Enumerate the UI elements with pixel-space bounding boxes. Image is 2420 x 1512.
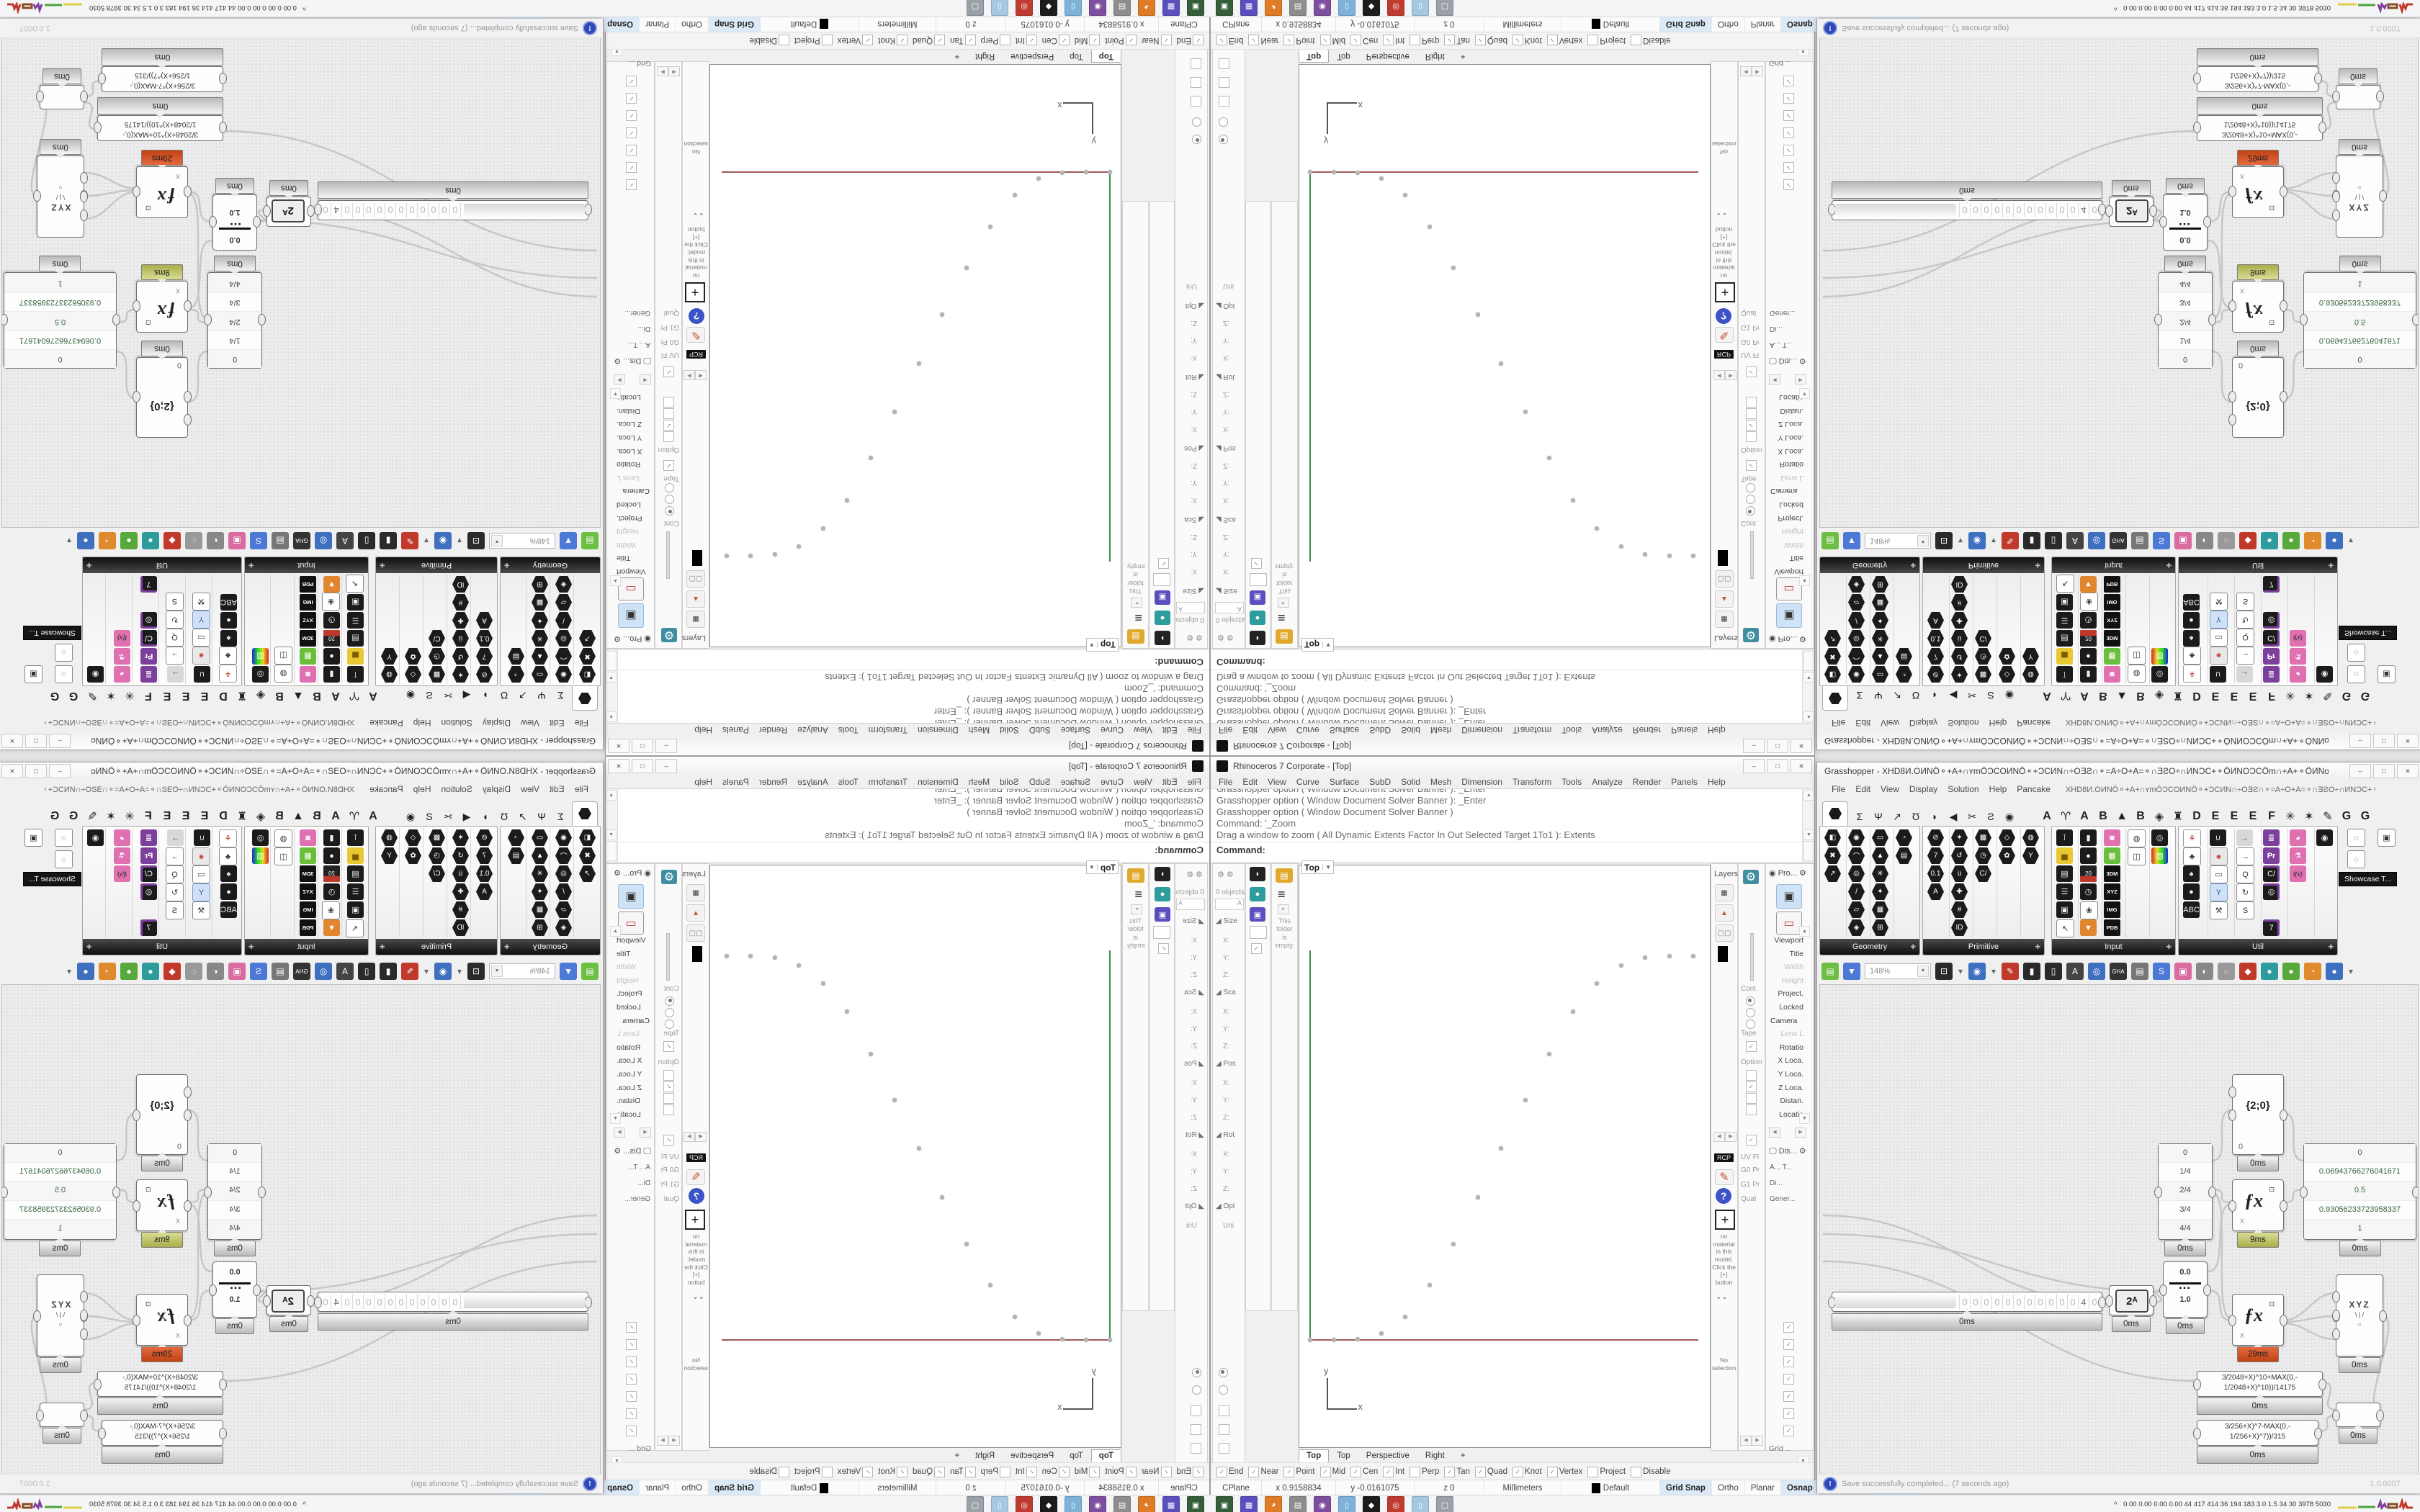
property-item-title[interactable]: Title bbox=[617, 554, 630, 562]
nav-right-icon[interactable]: ▶ bbox=[1752, 66, 1763, 76]
menu-item-dimension[interactable]: Dimension bbox=[1461, 725, 1502, 735]
menu-item-transform[interactable]: Transform bbox=[869, 777, 907, 787]
slider-digit-cell[interactable]: 0 bbox=[321, 1295, 331, 1309]
boxedit-checkbox[interactable] bbox=[1219, 1424, 1229, 1435]
input-port[interactable] bbox=[80, 210, 88, 221]
menu-item-tools[interactable]: Tools bbox=[838, 777, 859, 787]
component-icon[interactable]: C/ bbox=[2263, 865, 2280, 882]
scroll-down-icon[interactable]: ▼ bbox=[610, 1113, 621, 1124]
gha-badge-icon[interactable]: GHA bbox=[293, 963, 310, 980]
osnap-label[interactable]: Point bbox=[1296, 1467, 1314, 1476]
gh-tab-plugin-7[interactable]: ♜ bbox=[236, 686, 248, 705]
component-icon[interactable]: ▼ bbox=[323, 919, 340, 936]
gh-tab-plugin-16[interactable]: G bbox=[2340, 686, 2353, 705]
component-icon[interactable]: ▤ bbox=[1896, 847, 1912, 864]
nav-left-icon[interactable]: ◀ bbox=[640, 374, 651, 384]
component-icon[interactable]: → bbox=[166, 647, 184, 665]
osnap-label[interactable]: Tan bbox=[950, 36, 964, 45]
component-icon[interactable]: ✳ bbox=[532, 865, 548, 882]
component-icon[interactable]: ✦ bbox=[532, 612, 548, 629]
gh-component-panel-values[interactable]: 00.069437662760416710.50.930562337239583… bbox=[4, 1143, 117, 1240]
gh-titlebar[interactable]: Grasshopper - XHD8И.OИNÖ⚬+A+∩ʏmÖƆCOИNÖ⚬+… bbox=[1817, 762, 2420, 780]
component-icon[interactable]: ü bbox=[1951, 630, 1968, 647]
menu-item-panels[interactable]: Panels bbox=[1671, 777, 1698, 787]
status-cell[interactable]: Millimeters bbox=[859, 16, 936, 32]
status-cell[interactable]: z 0 bbox=[936, 1480, 1005, 1496]
component-icon[interactable]: ▭ bbox=[2210, 629, 2228, 647]
gh-tab-plugin-4[interactable]: ▲ bbox=[292, 807, 305, 826]
osnap-label[interactable]: Point bbox=[1105, 36, 1124, 45]
viewport-top[interactable]: Top▼ y x bbox=[1299, 865, 1711, 1448]
component-icon[interactable]: 3DM bbox=[300, 630, 316, 647]
component-icon[interactable]: 20 bbox=[2080, 865, 2097, 882]
component-icon[interactable]: → bbox=[166, 847, 184, 865]
doc-icon[interactable]: ▢▢ bbox=[1715, 924, 1734, 942]
component-icon[interactable]: ✚ bbox=[1951, 612, 1968, 629]
component-icon[interactable]: ▭ bbox=[2210, 865, 2228, 883]
group-label-util[interactable]: Util✚ bbox=[83, 557, 241, 573]
component-icon[interactable]: ↻ bbox=[2236, 883, 2254, 901]
osnap-label[interactable]: Int bbox=[1016, 36, 1025, 45]
finder-icon[interactable]: S bbox=[250, 532, 267, 549]
boxedit-checkbox[interactable] bbox=[1191, 1424, 1201, 1435]
gh-tab-icon-7[interactable]: Ƨ bbox=[423, 807, 436, 826]
property-item-zloca[interactable]: Z Loca. bbox=[1778, 420, 1803, 428]
component-icon[interactable]: ▱ bbox=[555, 901, 572, 918]
osnap-label[interactable]: Quad bbox=[1487, 36, 1507, 45]
slider-digit-cell[interactable]: 0 bbox=[2045, 203, 2056, 217]
property-item-yloca[interactable]: Y Loca. bbox=[617, 433, 642, 442]
slider-digit-cell[interactable]: 0 bbox=[418, 1295, 429, 1309]
app-recorder[interactable]: ▣ bbox=[1216, 1496, 1233, 1512]
menu-item-file[interactable]: File bbox=[575, 718, 588, 728]
gh-tab-plugin-17[interactable]: G bbox=[48, 807, 61, 826]
hat-icon[interactable]: ◗ bbox=[1155, 867, 1170, 881]
input-port[interactable] bbox=[2332, 1310, 2340, 1321]
viewport-tab-+[interactable]: + bbox=[947, 1449, 968, 1462]
command-prompt[interactable]: Command: bbox=[1211, 842, 1803, 863]
constraint-checkbox[interactable] bbox=[1746, 397, 1757, 408]
gh-component-panel-values[interactable]: 00.069437662760416710.50.930562337239583… bbox=[4, 272, 117, 369]
display-checkbox[interactable]: ✓ bbox=[626, 1391, 637, 1402]
viewport-tab-+[interactable]: + bbox=[1453, 50, 1474, 63]
constraint-radio[interactable] bbox=[1746, 1020, 1755, 1029]
displaymode-icon[interactable]: ▲ bbox=[1715, 904, 1734, 922]
property-item-distan[interactable]: Distan. bbox=[617, 1097, 640, 1105]
property-item-yloca[interactable]: Y Loca. bbox=[617, 1070, 642, 1079]
component-icon[interactable]: ü bbox=[1951, 865, 1968, 882]
menu-item-file[interactable]: File bbox=[1188, 725, 1201, 735]
scroll-up-icon[interactable]: ▲ bbox=[1799, 926, 1810, 937]
scroll-up-icon[interactable]: ▲ bbox=[1803, 790, 1814, 801]
component-icon[interactable]: ◙ bbox=[300, 829, 316, 846]
caret-icon[interactable]: ▾ bbox=[1990, 532, 1997, 549]
component-icon[interactable]: 7 bbox=[140, 576, 157, 593]
component-icon[interactable]: ✶ bbox=[1951, 829, 1968, 846]
osnap-checkbox[interactable]: ✓ bbox=[1383, 35, 1394, 46]
gh-tab-icon-3[interactable]: Ʊ bbox=[1909, 686, 1922, 705]
component-icon[interactable]: ● bbox=[2080, 847, 2097, 864]
component-icon[interactable]: ▥ bbox=[252, 847, 269, 864]
component-icon[interactable]: ● bbox=[220, 612, 237, 629]
link-rings-icon[interactable]: ◎ bbox=[2088, 532, 2105, 549]
ball-pie-icon[interactable]: ◔ bbox=[99, 963, 116, 980]
input-port[interactable] bbox=[2193, 1379, 2201, 1390]
component-icon[interactable]: ◎ bbox=[555, 865, 572, 882]
minimize-button[interactable]: – bbox=[49, 764, 71, 778]
menu-item-analyze[interactable]: Analyze bbox=[797, 725, 828, 735]
menu-item-surface[interactable]: Surface bbox=[1330, 725, 1359, 735]
property-item-width[interactable]: Width bbox=[617, 963, 636, 971]
scroll-box[interactable] bbox=[1803, 651, 1814, 671]
masks-icon[interactable]: ◐ bbox=[207, 532, 224, 549]
group-expand-icon[interactable]: ✚ bbox=[248, 562, 254, 570]
component-icon[interactable]: ◍ bbox=[2128, 829, 2146, 847]
menu-item-mesh[interactable]: Mesh bbox=[1430, 777, 1451, 787]
osnap-checkbox[interactable]: ✓ bbox=[1248, 35, 1259, 46]
component-icon[interactable]: → bbox=[167, 666, 184, 683]
menu-item-surface[interactable]: Surface bbox=[1330, 777, 1359, 787]
output-port[interactable] bbox=[133, 186, 140, 197]
component-icon[interactable]: ✳ bbox=[1872, 865, 1888, 882]
hat-icon[interactable]: ◗ bbox=[1250, 631, 1265, 645]
osnap-label[interactable]: Perp bbox=[981, 1467, 998, 1476]
gh-component-panel-fractions[interactable]: 01/42/43/44/4 bbox=[207, 1143, 262, 1240]
gh-tab-plugin-14[interactable]: ✶ bbox=[2303, 686, 2316, 705]
component-icon[interactable]: 7 bbox=[1927, 648, 1944, 665]
gh-tab-plugin-4[interactable]: ▲ bbox=[2115, 807, 2128, 826]
component-icon[interactable]: ▲ bbox=[1872, 648, 1888, 665]
display-row[interactable]: A... T... bbox=[628, 1164, 650, 1171]
gem-icon[interactable]: ◆ bbox=[2239, 963, 2257, 980]
property-item-locked[interactable]: Locked bbox=[1779, 500, 1803, 509]
component-icon[interactable]: ◷ bbox=[429, 847, 445, 864]
constraint-checkbox[interactable] bbox=[663, 397, 674, 408]
osnap-checkbox[interactable]: ✓ bbox=[1350, 1467, 1361, 1477]
maximize-button[interactable]: □ bbox=[2373, 734, 2395, 748]
component-icon[interactable]: IMG bbox=[2104, 901, 2120, 918]
panel-checkbox[interactable]: ✓ bbox=[1251, 558, 1262, 569]
display-checkbox[interactable]: ✓ bbox=[626, 76, 637, 86]
expand-icon[interactable]: ▸ bbox=[1131, 598, 1142, 608]
gh-titlebar[interactable]: Grasshopper - XHD8И.OИNÖ⚬+A+∩ʏmÖƆCOИNÖ⚬+… bbox=[0, 762, 603, 780]
status-cell[interactable]: Millimeters bbox=[1484, 1480, 1561, 1496]
speaker-icon[interactable]: ▯ bbox=[2045, 963, 2062, 980]
slider-digit-cell[interactable]: 0 bbox=[2035, 203, 2045, 217]
gh-tab-plugin-16[interactable]: G bbox=[67, 807, 80, 826]
rhino-command-history[interactable]: Grasshopper option ( Window Document Sol… bbox=[1211, 788, 1814, 863]
app-rhino[interactable]: ◆ bbox=[1040, 0, 1057, 16]
command-prompt[interactable]: Command: bbox=[617, 649, 1209, 670]
gh-tab-plugin-8[interactable]: D bbox=[217, 807, 230, 826]
gh-component-relay[interactable] bbox=[2336, 1403, 2380, 1427]
constraint-checkbox[interactable] bbox=[1746, 431, 1757, 442]
component-icon[interactable]: ↻ bbox=[2236, 611, 2254, 629]
status-cell[interactable]: Default bbox=[760, 16, 859, 32]
constraint-checkbox[interactable] bbox=[1746, 1093, 1757, 1104]
slider-digit-cell[interactable]: 0 bbox=[2089, 203, 2099, 217]
osnap-checkbox[interactable] bbox=[1631, 1467, 1641, 1477]
gh-component-relay[interactable] bbox=[2336, 85, 2380, 109]
caret-icon[interactable]: ▾ bbox=[66, 532, 73, 549]
help-icon[interactable]: ? bbox=[1716, 1188, 1731, 1204]
slider-digit-cell[interactable]: 0 bbox=[2056, 1295, 2067, 1309]
component-icon[interactable]: ▦ bbox=[2104, 847, 2120, 864]
status-cell[interactable]: z 0 bbox=[1415, 1480, 1484, 1496]
component-icon[interactable]: ◉ bbox=[192, 647, 210, 665]
gha-badge-icon[interactable]: GHA bbox=[293, 532, 310, 549]
maximize-button[interactable]: □ bbox=[1767, 759, 1788, 773]
output-port[interactable] bbox=[36, 91, 44, 102]
component-icon[interactable]: 0.1 bbox=[476, 630, 493, 647]
component-icon[interactable]: ♠ bbox=[220, 630, 237, 647]
constraint-checkbox[interactable]: ✓ bbox=[1746, 460, 1757, 471]
scroll-box[interactable] bbox=[606, 651, 617, 671]
constraint-checkbox[interactable] bbox=[1746, 1104, 1757, 1115]
gh-component-expression-2[interactable]: ƒx⊡X bbox=[136, 1294, 188, 1346]
slider-digit-cell[interactable]: 0 bbox=[396, 203, 407, 217]
slider-digit-cell[interactable]: 0 bbox=[1991, 1295, 2002, 1309]
app-notepad[interactable]: ▯ bbox=[1065, 1496, 1082, 1512]
scroll-up-icon[interactable]: ▲ bbox=[1799, 575, 1810, 586]
layers-materials-panel[interactable]: Layers▦▲▢▢◀▶RCP✎?+no material in this mo… bbox=[682, 61, 709, 649]
boxedit-checkbox[interactable] bbox=[1219, 96, 1229, 107]
scroll-down-icon[interactable]: ▼ bbox=[1803, 829, 1814, 840]
app-storage[interactable]: ▦ bbox=[1162, 0, 1180, 16]
app-firefox[interactable]: ◕ bbox=[1138, 0, 1155, 16]
gh-tab-icon-6[interactable]: ✂ bbox=[442, 686, 454, 705]
osnap-checkbox[interactable]: ✓ bbox=[1475, 1467, 1486, 1477]
status-cell[interactable]: Millimeters bbox=[1484, 16, 1561, 32]
component-icon[interactable]: ◧ bbox=[579, 829, 596, 846]
component-icon[interactable]: ◎ bbox=[1848, 865, 1865, 882]
output-port[interactable] bbox=[98, 1428, 106, 1439]
component-icon[interactable]: ≣ bbox=[140, 829, 157, 846]
gh-tab-icon-4[interactable]: ◗ bbox=[479, 807, 492, 826]
component-icon[interactable]: ≣ bbox=[2263, 829, 2280, 846]
tray-chevron[interactable]: ^ bbox=[2114, 4, 2118, 12]
gh-tab-icon-7[interactable]: Ƨ bbox=[1984, 807, 1997, 826]
scroll-down-icon[interactable]: ▼ bbox=[610, 388, 621, 399]
component-icon[interactable]: ◙ bbox=[2104, 666, 2120, 683]
menu-item-tools[interactable]: Tools bbox=[1561, 725, 1582, 735]
component-icon[interactable]: ▮ bbox=[2080, 666, 2097, 683]
status-toggle-planar[interactable]: Planar bbox=[639, 16, 675, 32]
menu-item-panels[interactable]: Panels bbox=[1671, 725, 1698, 735]
component-icon[interactable]: ◷ bbox=[323, 612, 340, 629]
component-icon[interactable]: ◉ bbox=[87, 829, 104, 846]
panel-gear-icon[interactable]: ⚙ bbox=[661, 870, 677, 884]
osnap-checkbox[interactable]: ✓ bbox=[1512, 35, 1523, 46]
osnap-label[interactable]: Vertex bbox=[838, 36, 861, 45]
component-icon[interactable]: ❀ bbox=[2080, 593, 2098, 611]
osnap-checkbox[interactable] bbox=[779, 35, 789, 46]
osnap-checkbox[interactable]: ✓ bbox=[934, 35, 945, 46]
property-item-rotatio[interactable]: Rotatio bbox=[617, 460, 640, 469]
component-icon[interactable]: ▱ bbox=[1848, 901, 1865, 918]
bag-icon[interactable]: ▣ bbox=[228, 532, 246, 549]
open-icon[interactable]: ▤ bbox=[1821, 963, 1839, 980]
gh-tab-plugin-5[interactable]: B bbox=[2134, 686, 2147, 705]
constraint-checkbox[interactable]: ✓ bbox=[1746, 1081, 1757, 1092]
display-checkbox[interactable]: ✓ bbox=[626, 145, 637, 156]
panel-gear-icon[interactable]: ⚙ bbox=[1743, 870, 1759, 884]
component-icon[interactable]: ✿ bbox=[1999, 648, 2015, 665]
output-port[interactable] bbox=[2280, 186, 2287, 197]
component-icon[interactable]: Y bbox=[2022, 847, 2039, 864]
displaymode-icon[interactable]: ▲ bbox=[686, 904, 705, 922]
menu-item-pancake[interactable]: Pancake bbox=[2017, 784, 2051, 794]
displaymode-icon[interactable]: ▲ bbox=[1715, 590, 1734, 608]
slider-digit-cell[interactable]: 0 bbox=[1981, 203, 1991, 217]
osnap-checkbox[interactable]: ✓ bbox=[1126, 1467, 1137, 1477]
group-label-util[interactable]: Util✚ bbox=[83, 939, 241, 955]
osnap-checkbox[interactable]: ✓ bbox=[1444, 1467, 1455, 1477]
input-port[interactable] bbox=[2193, 122, 2201, 133]
menu-item-display[interactable]: Display bbox=[1909, 718, 1937, 728]
component-icon[interactable]: ⊘ bbox=[1927, 829, 1944, 846]
ball-green-icon[interactable]: ● bbox=[2282, 532, 2300, 549]
camera-properties-icon[interactable]: ▣ bbox=[1776, 603, 1802, 628]
osnap-checkbox[interactable]: ✓ bbox=[862, 1467, 873, 1477]
component-icon[interactable]: ▱ bbox=[1848, 594, 1865, 611]
osnap-checkbox[interactable] bbox=[1000, 1467, 1010, 1477]
input-port[interactable] bbox=[258, 314, 266, 325]
component-icon[interactable]: 20 bbox=[2080, 630, 2097, 647]
component-icon[interactable]: ▥ bbox=[252, 648, 269, 665]
showcase-icon-0[interactable]: ◌ bbox=[2347, 665, 2365, 683]
gh-tab-plugin-3[interactable]: B bbox=[310, 807, 323, 826]
gh-tab-plugin-3[interactable]: B bbox=[2097, 807, 2110, 826]
menu-item-analyze[interactable]: Analyze bbox=[1592, 777, 1623, 787]
doc-icon[interactable]: ▢▢ bbox=[1715, 570, 1734, 588]
status-toggle-ortho[interactable]: Ortho bbox=[1712, 16, 1745, 32]
component-icon[interactable]: ▼ bbox=[2080, 919, 2097, 936]
gear-icon[interactable]: ⚙ ⚙ bbox=[1186, 633, 1203, 642]
link-rings-icon[interactable]: ◎ bbox=[2088, 963, 2105, 980]
component-icon[interactable]: → bbox=[167, 829, 184, 846]
input-port[interactable] bbox=[2228, 1200, 2236, 1212]
input-port[interactable] bbox=[184, 414, 192, 426]
minimize-button[interactable]: – bbox=[1743, 759, 1765, 773]
add-material-button[interactable]: + bbox=[1715, 1210, 1735, 1230]
slider-digit-cell[interactable]: 0 bbox=[2013, 1295, 2024, 1309]
slider-digit-cell[interactable]: 0 bbox=[429, 1295, 439, 1309]
osnap-checkbox[interactable]: ✓ bbox=[1475, 35, 1486, 46]
gh-tab-plugin-13[interactable]: ✳ bbox=[2284, 686, 2297, 705]
gem-icon[interactable]: ◆ bbox=[163, 963, 181, 980]
gh-tab-plugin-5[interactable]: B bbox=[273, 686, 286, 705]
menu-item-help[interactable]: Help bbox=[413, 718, 431, 728]
nav-right-icon[interactable]: ▶ bbox=[1752, 1436, 1763, 1446]
component-icon[interactable]: Q bbox=[166, 629, 184, 647]
panel-gear-icon[interactable]: ⚙ bbox=[661, 628, 677, 642]
app-window[interactable]: ▢ bbox=[967, 0, 984, 16]
component-icon[interactable]: ⊞ bbox=[1872, 919, 1888, 936]
menu-item-dimension[interactable]: Dimension bbox=[918, 777, 959, 787]
folder-icon[interactable]: ▤ bbox=[1276, 868, 1293, 883]
component-icon[interactable]: ◍ bbox=[2128, 665, 2146, 683]
gh-component-panel-expr-1[interactable]: 3/2048+X)^10+MAX(0,-1/2048+X)^10))/14175 bbox=[97, 115, 223, 141]
caret-icon[interactable]: ▾ bbox=[2347, 532, 2354, 549]
component-icon[interactable]: ◇ bbox=[405, 666, 421, 683]
menu-item-curve[interactable]: Curve bbox=[1296, 725, 1319, 735]
maximize-button[interactable]: □ bbox=[1767, 739, 1788, 753]
osnap-checkbox[interactable]: ✓ bbox=[965, 35, 976, 46]
component-icon[interactable]: ▅ bbox=[2056, 847, 2073, 864]
nav-right-icon[interactable]: ▶ bbox=[1725, 370, 1736, 380]
group-expand-icon[interactable]: ✚ bbox=[86, 562, 92, 570]
scroll-down-icon[interactable]: ▼ bbox=[606, 829, 617, 840]
osnap-checkbox[interactable]: ✓ bbox=[1283, 35, 1294, 46]
constraint-panel[interactable]: ⚙ContTapeOptionUV FlG0 PrG1 PrQual✓✓✓◀▶ bbox=[655, 61, 682, 649]
font-tool-icon[interactable]: A bbox=[2066, 963, 2084, 980]
gh-component-construct-point[interactable]: XYZ\ | /○ bbox=[37, 156, 84, 238]
nav-right-icon[interactable]: ▶ bbox=[1795, 1128, 1806, 1138]
component-icon[interactable]: ✖ bbox=[1824, 847, 1841, 864]
viewport-tab-top[interactable]: Top bbox=[1091, 1449, 1121, 1462]
help-icon[interactable]: ? bbox=[689, 1188, 704, 1204]
ball-pie-icon[interactable]: ◔ bbox=[2304, 963, 2321, 980]
gh-tab-plugin-11[interactable]: E bbox=[161, 807, 174, 826]
zoom-extents-icon[interactable]: ⊡ bbox=[467, 532, 485, 549]
component-icon[interactable]: ◫ bbox=[274, 647, 292, 665]
component-icon[interactable]: IMG bbox=[2104, 594, 2120, 611]
doc-flag-icon[interactable]: ▤ bbox=[2131, 532, 2148, 549]
input-port[interactable] bbox=[584, 204, 592, 215]
group-label-input[interactable]: Input✚ bbox=[2052, 939, 2175, 955]
gh-tab-plugin-15[interactable]: ✎ bbox=[86, 807, 99, 826]
input-port[interactable] bbox=[2332, 1328, 2340, 1340]
osnap-checkbox[interactable]: ✓ bbox=[1383, 1467, 1394, 1477]
finder-icon[interactable]: S bbox=[2153, 963, 2170, 980]
rhino-command-history[interactable]: Grasshopper option ( Window Document Sol… bbox=[1211, 649, 1814, 724]
viewport-tab-top[interactable]: Top bbox=[1299, 1449, 1329, 1462]
slider-digit-cell[interactable]: 0 bbox=[429, 203, 439, 217]
properties-tab[interactable]: ◉ Pro... ⚙ bbox=[614, 868, 651, 878]
slider-track[interactable] bbox=[1750, 933, 1754, 981]
boxedit-checkbox[interactable] bbox=[1219, 1405, 1229, 1416]
component-icon[interactable]: ⚗ bbox=[114, 847, 130, 864]
menu-item-help[interactable]: Help bbox=[1708, 725, 1726, 735]
component-icon[interactable]: ▤ bbox=[2056, 630, 2073, 647]
constraint-radio[interactable] bbox=[665, 996, 674, 1006]
component-icon[interactable]: ◈ bbox=[555, 576, 572, 593]
slider-digit-cell[interactable]: 0 bbox=[1959, 1295, 1970, 1309]
doc-icon[interactable]: ▢▢ bbox=[686, 924, 705, 942]
component-icon[interactable]: 3DM bbox=[2104, 630, 2120, 647]
nav-left-icon[interactable]: ◀ bbox=[668, 1436, 680, 1446]
output-port[interactable] bbox=[94, 1379, 102, 1390]
status-cell[interactable]: y -0.0161075 bbox=[1336, 16, 1415, 32]
component-icon[interactable]: Y bbox=[381, 847, 398, 864]
gh-tab-icon-4[interactable]: ◗ bbox=[1928, 686, 1941, 705]
display-checkbox[interactable]: ✓ bbox=[626, 1322, 637, 1333]
input-port[interactable] bbox=[2332, 191, 2340, 202]
osnap-checkbox[interactable] bbox=[1410, 35, 1420, 46]
close-button[interactable]: ✕ bbox=[1, 734, 23, 748]
component-icon[interactable]: Pr bbox=[140, 648, 157, 665]
component-icon[interactable]: ● bbox=[2080, 648, 2097, 665]
display-rect-icon[interactable]: ▭ bbox=[1776, 577, 1802, 600]
component-icon[interactable]: ▱ bbox=[555, 594, 572, 611]
gh-tab-plugin-0[interactable]: A bbox=[367, 807, 380, 826]
component-icon[interactable]: S bbox=[166, 901, 184, 919]
menu-item-subd[interactable]: SubD bbox=[1029, 725, 1051, 735]
slider-digit-cell[interactable]: 0 bbox=[407, 203, 418, 217]
slider-digit-cell[interactable]: 0 bbox=[1970, 1295, 1981, 1309]
input-port[interactable] bbox=[2193, 73, 2201, 84]
